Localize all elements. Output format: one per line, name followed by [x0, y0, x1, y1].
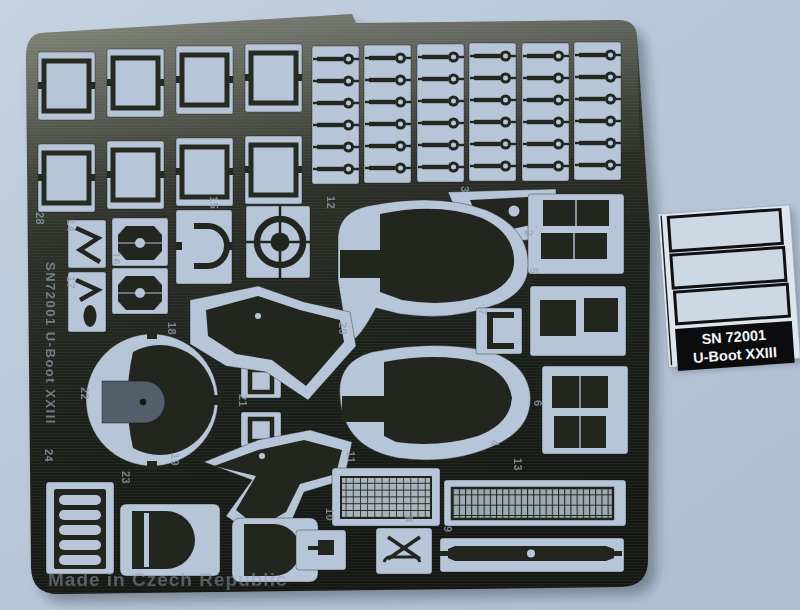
pe-fret: SN72001 U-Boot XXIII Made in Czech Repub…	[26, 14, 650, 594]
mesh-grating	[332, 468, 440, 526]
svg-text:8: 8	[403, 516, 415, 523]
louver-part	[46, 482, 114, 574]
svg-text:2: 2	[523, 230, 535, 237]
svg-text:28: 28	[34, 212, 46, 225]
hexagon-parts	[112, 218, 168, 314]
plate-pair-6	[542, 366, 628, 454]
plate-pair-3	[528, 194, 624, 274]
svg-text:16: 16	[110, 252, 122, 265]
svg-text:13: 13	[512, 458, 524, 471]
svg-text:10: 10	[324, 508, 336, 521]
fret-vertical-text: SN72001 U-Boot XXIII	[43, 262, 58, 425]
periscope-bar-part	[440, 538, 624, 572]
svg-text:3: 3	[459, 186, 471, 193]
svg-text:19: 19	[169, 453, 181, 466]
long-grating	[444, 480, 626, 526]
svg-text:9: 9	[442, 526, 454, 533]
small-block-part	[296, 530, 346, 570]
svg-text:11: 11	[345, 451, 357, 464]
arch-part	[176, 210, 232, 284]
svg-text:18: 18	[166, 322, 178, 335]
svg-text:5: 5	[528, 268, 540, 275]
svg-text:24: 24	[43, 449, 55, 463]
decal-box	[671, 247, 786, 288]
svg-text:21: 21	[237, 394, 249, 407]
decal-box	[668, 209, 782, 251]
svg-text:6: 6	[532, 400, 544, 407]
svg-text:7: 7	[477, 309, 489, 316]
decal-box	[674, 284, 789, 324]
label-sheet: SN 72001 U-Boot XXIII	[658, 205, 800, 373]
svg-text:20: 20	[337, 322, 349, 335]
svg-text:22: 22	[79, 387, 91, 400]
x-stand-part	[376, 528, 432, 574]
photo-of-photoetch-fret: SN72001 U-Boot XXIII Made in Czech Repub…	[0, 0, 800, 610]
svg-text:23: 23	[120, 471, 132, 484]
ring-hatch-part	[246, 206, 310, 278]
svg-text:4: 4	[489, 440, 501, 447]
svg-text:15: 15	[208, 196, 220, 209]
svg-text:14: 14	[65, 219, 77, 233]
plate-pair-5	[530, 286, 626, 356]
photo-canvas: SN72001 U-Boot XXIII Made in Czech Repub…	[0, 0, 800, 610]
svg-text:12: 12	[325, 196, 337, 209]
svg-text:17: 17	[65, 276, 77, 289]
fret-bottom-text: Made in Czech Republic	[48, 569, 287, 590]
